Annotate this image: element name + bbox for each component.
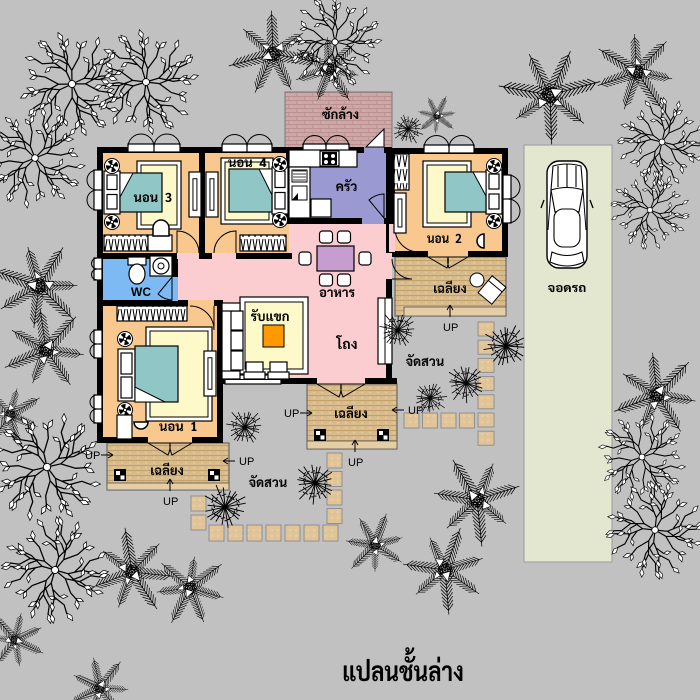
svg-text:UP: UP xyxy=(408,405,423,417)
svg-text:UP: UP xyxy=(348,457,363,469)
svg-text:UP: UP xyxy=(284,408,299,420)
svg-text:UP: UP xyxy=(163,496,178,508)
svg-text:UP: UP xyxy=(239,456,254,468)
svg-text:WC: WC xyxy=(131,285,151,299)
svg-text:UP: UP xyxy=(85,450,100,462)
svg-text:UP: UP xyxy=(443,322,458,334)
